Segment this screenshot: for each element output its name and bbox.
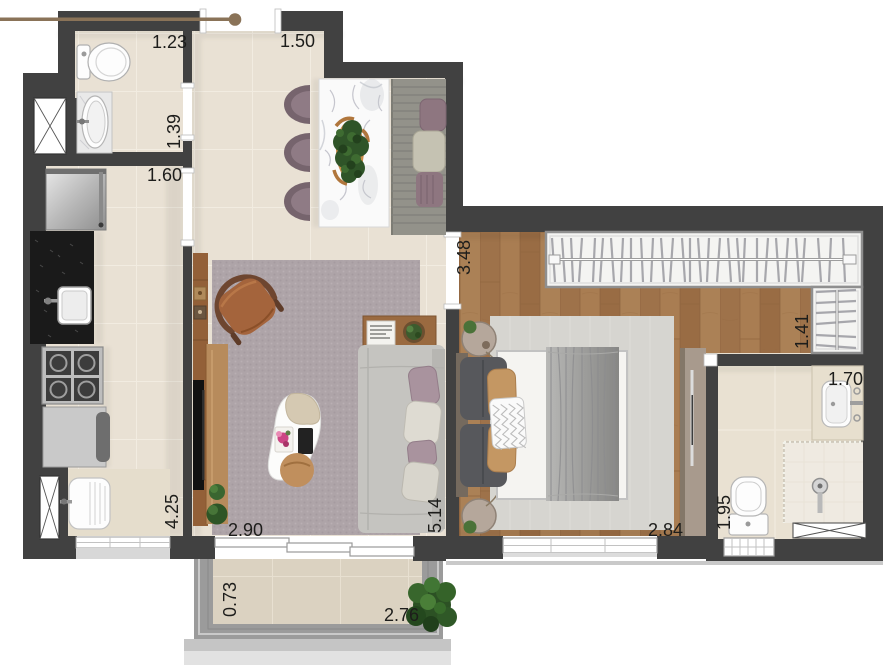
svg-text:1.41: 1.41 <box>792 314 812 349</box>
svg-text:5.14: 5.14 <box>425 498 445 533</box>
svg-text:1.39: 1.39 <box>164 114 184 149</box>
svg-text:4.25: 4.25 <box>162 494 182 529</box>
svg-text:1.70: 1.70 <box>828 369 863 389</box>
svg-text:3.48: 3.48 <box>454 240 474 275</box>
svg-text:1.23: 1.23 <box>152 32 187 52</box>
svg-text:0.73: 0.73 <box>220 582 240 617</box>
svg-text:2.84: 2.84 <box>648 520 683 540</box>
svg-text:2.90: 2.90 <box>228 520 263 540</box>
svg-text:1.60: 1.60 <box>147 165 182 185</box>
svg-text:1.50: 1.50 <box>280 31 315 51</box>
svg-text:1.95: 1.95 <box>714 495 734 530</box>
svg-text:2.76: 2.76 <box>384 605 419 625</box>
